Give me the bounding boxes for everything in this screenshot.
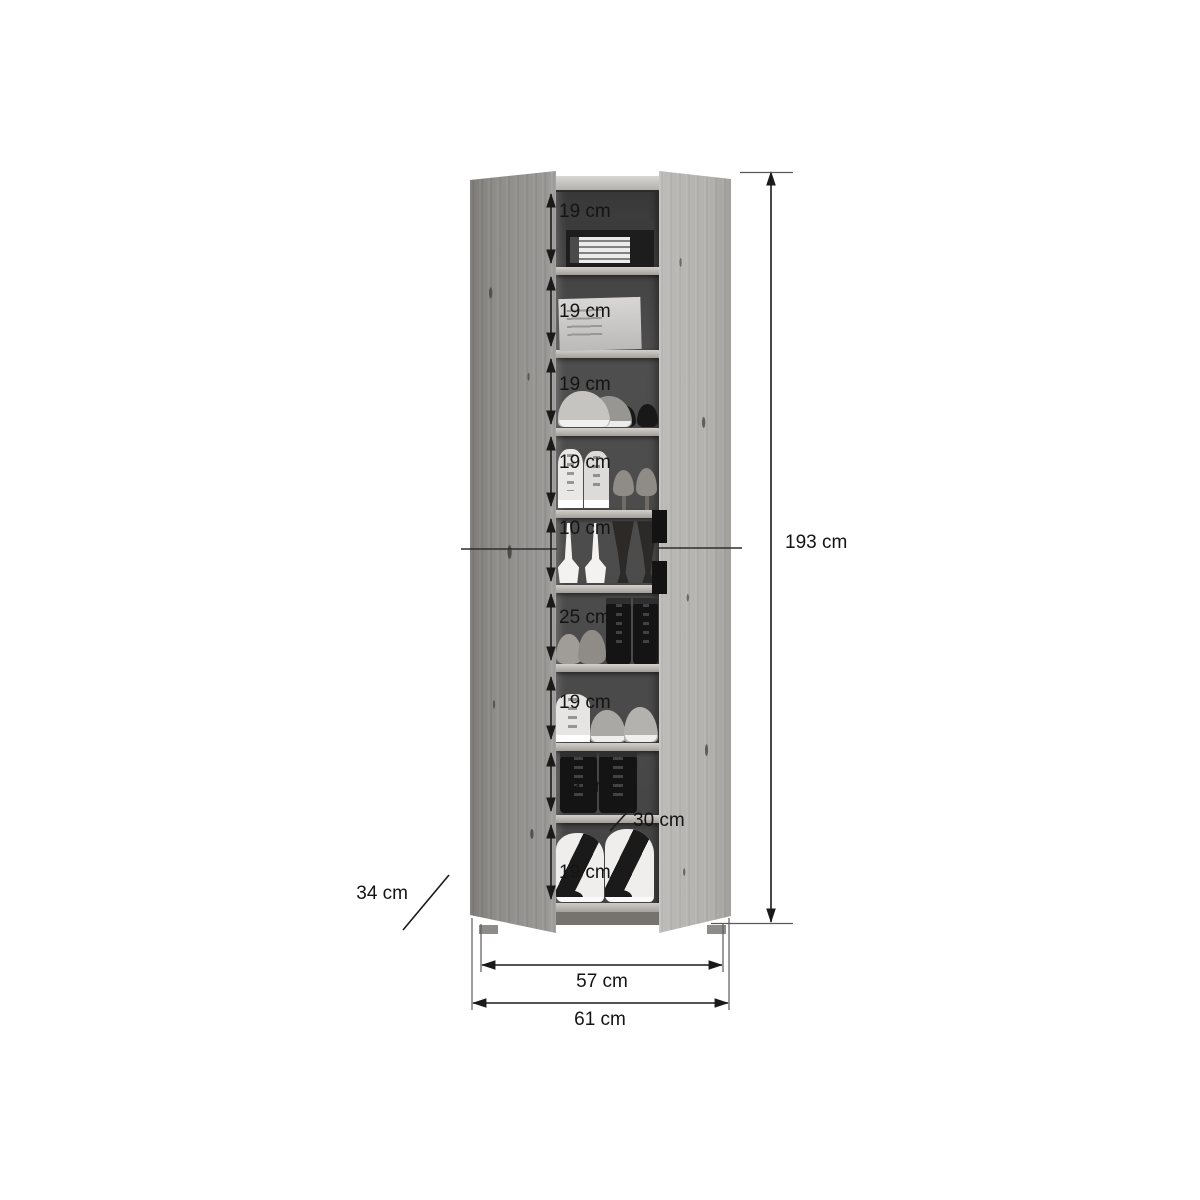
compartment-height-label: 25 cm	[559, 607, 611, 629]
cabinet-bottom-board	[556, 903, 659, 912]
compartment-height-label: 19 cm	[559, 692, 611, 714]
shelf	[556, 585, 659, 593]
shelf	[556, 428, 659, 436]
depth-dimension-pointer	[403, 875, 449, 930]
compartment-height-label: 19 cm	[559, 776, 611, 798]
shelf	[556, 510, 659, 518]
inner-width-dimension	[481, 924, 723, 972]
cabinet-foot-right	[707, 925, 726, 934]
shelf	[556, 743, 659, 751]
black-lace-up-boot	[633, 598, 658, 664]
shelf	[556, 267, 659, 275]
outer-width-dimension	[472, 918, 729, 1010]
compartment-height-label: 19 cm	[559, 452, 611, 474]
compartment-height-label: 19 cm	[559, 862, 611, 884]
black-shoe-box	[566, 221, 654, 267]
cabinet-top-panel	[553, 176, 662, 192]
overall-width-label: 61 cm	[574, 1009, 626, 1031]
compartment-height-label: 19 cm	[559, 301, 611, 323]
shelf-depth-label: 30 cm	[633, 810, 685, 832]
compartment-height-label: 19 cm	[559, 201, 611, 223]
wedge-high-top-sneaker	[605, 829, 654, 902]
shelf	[556, 664, 659, 672]
cabinet-left-door	[470, 171, 556, 933]
inner-width-label: 57 cm	[576, 971, 628, 993]
shoe-box-label	[570, 237, 630, 263]
product-dimension-diagram: 19 cm 19 cm 19 cm 19 cm 10 cm 25 cm 19 c…	[0, 0, 1200, 1200]
depth-label: 34 cm	[308, 883, 408, 905]
overall-height-label: 193 cm	[785, 532, 847, 554]
shelf	[556, 350, 659, 358]
compartment-height-label: 19 cm	[559, 374, 611, 396]
compartment-height-label: 10 cm	[559, 518, 611, 540]
cabinet-plinth	[556, 912, 659, 925]
door-handle-lower	[652, 561, 667, 594]
door-handle-upper	[652, 510, 667, 543]
cabinet-foot-left	[479, 925, 498, 934]
